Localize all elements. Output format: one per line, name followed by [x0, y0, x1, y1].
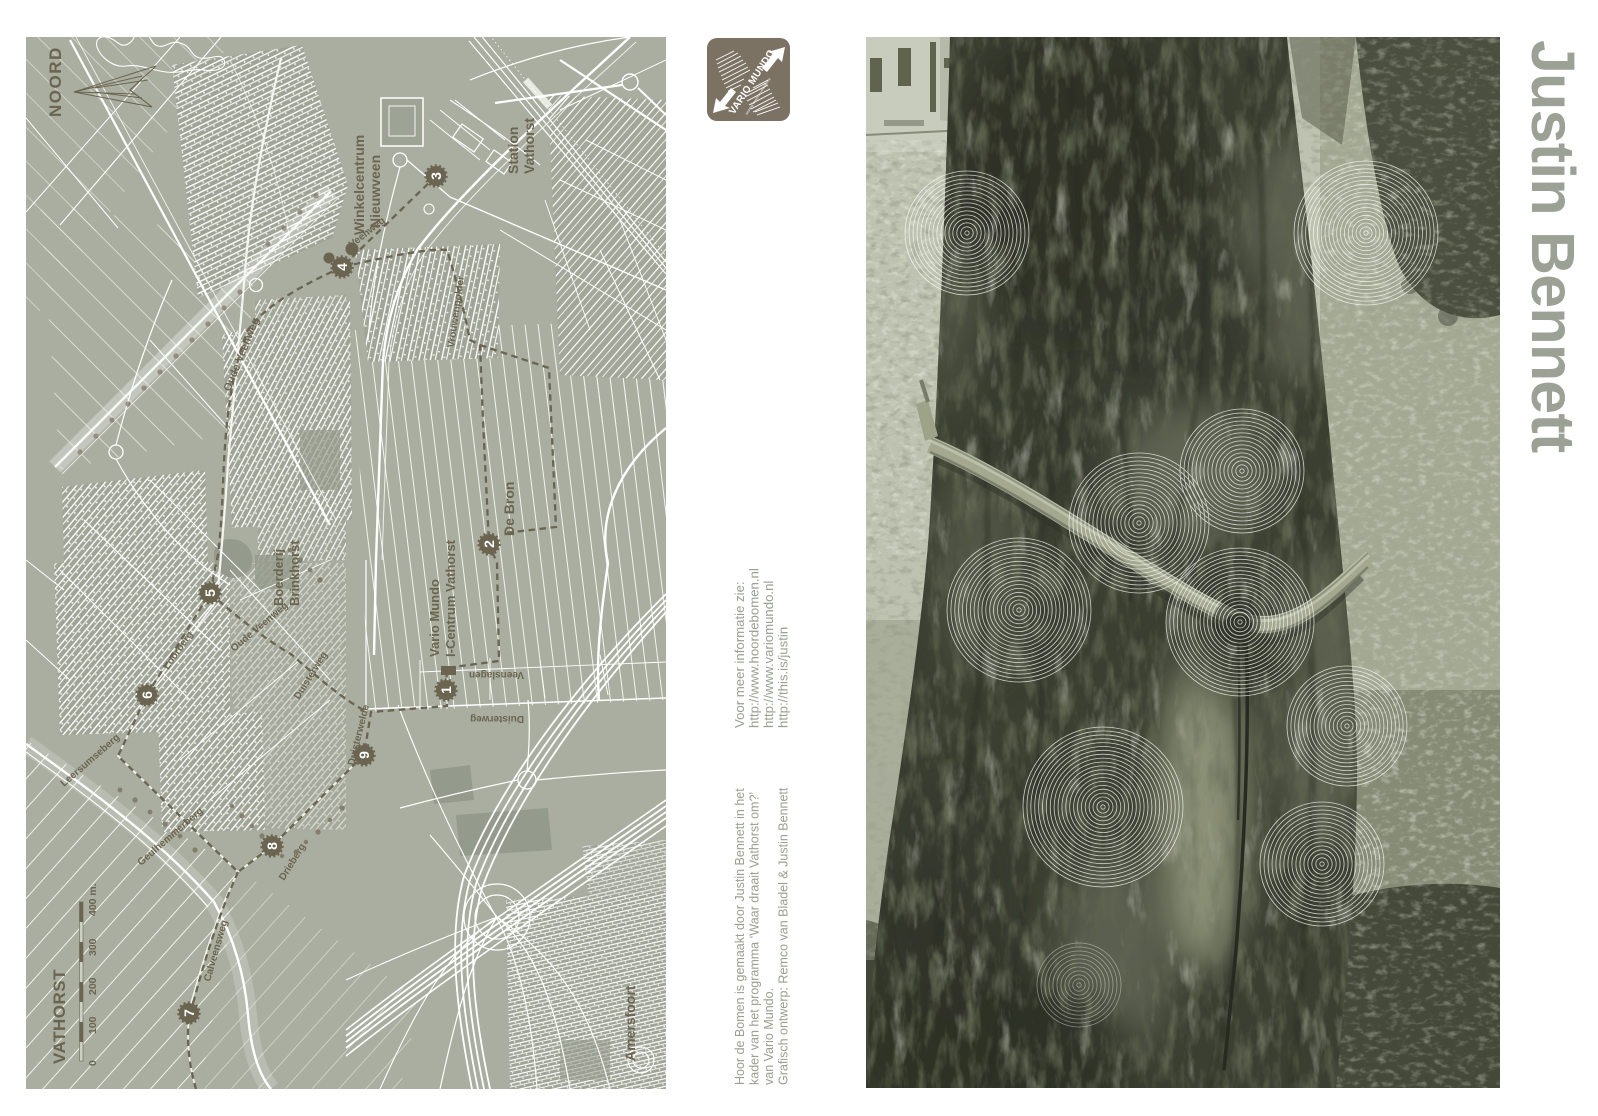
svg-text:kader van het programma ‘Waar: kader van het programma ‘Waar draait Vat… [748, 792, 762, 1085]
svg-text:4: 4 [334, 263, 350, 271]
svg-text:2: 2 [481, 540, 497, 548]
svg-text:9: 9 [356, 751, 372, 759]
svg-text:NOORD: NOORD [46, 46, 65, 117]
svg-text:8: 8 [264, 842, 280, 850]
svg-text:Station: Station [505, 127, 521, 174]
svg-text:3: 3 [428, 172, 444, 180]
svg-text:Vario Mundo: Vario Mundo [427, 579, 442, 657]
svg-text:Voor meer informatie zie:: Voor meer informatie zie: [732, 581, 747, 728]
svg-text:van Vario Mundo.: van Vario Mundo. [762, 988, 776, 1085]
svg-text:I-Centrum Vathorst: I-Centrum Vathorst [443, 539, 458, 657]
svg-text:7: 7 [181, 1009, 197, 1017]
svg-text:http://www.variomundo.nl: http://www.variomundo.nl [761, 581, 776, 728]
svg-text:Winkelcentrum: Winkelcentrum [351, 135, 367, 235]
svg-text:Amersfoort: Amersfoort [622, 985, 638, 1061]
svg-text:Vathorst: Vathorst [521, 118, 537, 174]
svg-text:Grafisch ontwerp: Remco van Bl: Grafisch ontwerp: Remco van Bladel & Jus… [777, 787, 791, 1085]
svg-text:Veenslagen: Veenslagen [469, 669, 524, 680]
svg-text:400 m.: 400 m. [87, 883, 99, 916]
svg-text:Hoor de Bomen is gemaakt door: Hoor de Bomen is gemaakt door Justin Ben… [733, 788, 747, 1085]
svg-text:Justin Bennett: Justin Bennett [1519, 40, 1587, 453]
svg-text:VATHORST: VATHORST [50, 969, 69, 1064]
svg-text:300: 300 [87, 938, 99, 956]
svg-text:De Bron: De Bron [501, 482, 517, 536]
svg-text:1: 1 [438, 686, 454, 694]
svg-text:6: 6 [139, 691, 155, 699]
svg-text:100: 100 [87, 1016, 99, 1034]
svg-text:http://www.hoordebomen.nl: http://www.hoordebomen.nl [747, 568, 762, 728]
svg-text:http://this.is/justin: http://this.is/justin [776, 627, 791, 728]
svg-text:5: 5 [202, 589, 218, 597]
svg-text:200: 200 [87, 977, 99, 995]
svg-text:Duisterweg: Duisterweg [470, 713, 524, 724]
svg-text:0: 0 [87, 1060, 99, 1066]
svg-text:Boerderij: Boerderij [271, 549, 286, 606]
